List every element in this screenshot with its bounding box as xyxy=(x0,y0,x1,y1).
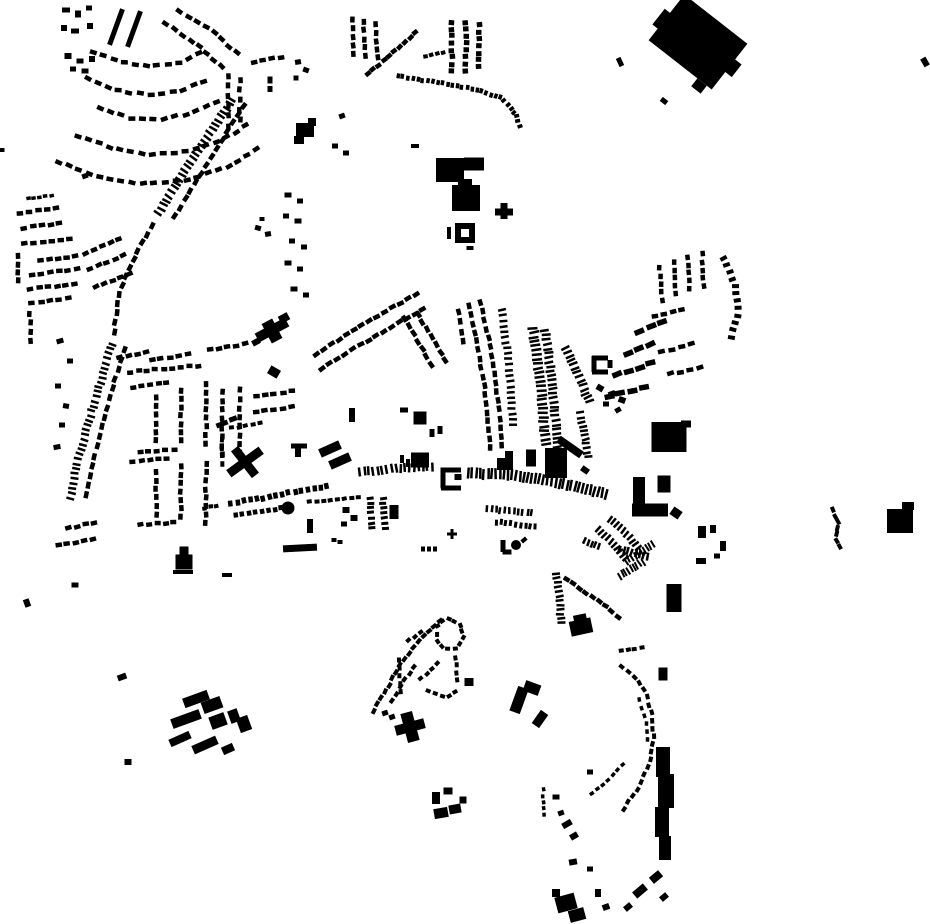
map-canvas xyxy=(0,0,930,924)
figure-ground-map xyxy=(0,0,930,924)
